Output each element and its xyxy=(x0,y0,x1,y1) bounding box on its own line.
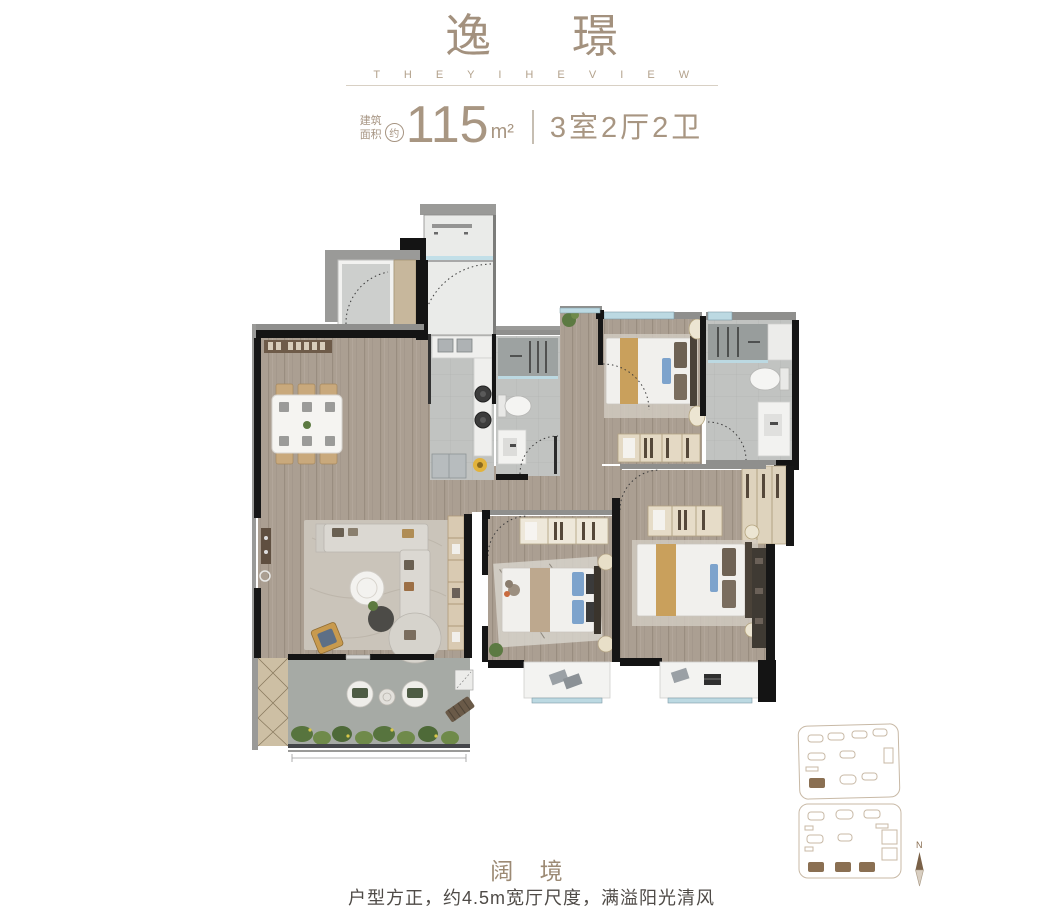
entry-label-marks xyxy=(432,224,472,228)
spec-row: 建筑 面积 约 115 m² 3室2厅2卫 xyxy=(0,102,1063,150)
compass-label: N xyxy=(916,840,923,850)
footer-desc-row: 户型方正，约4.5m宽厅尺度，满溢阳光清风 xyxy=(0,884,1063,910)
area-label-line2: 面积 xyxy=(360,129,382,143)
area-value: 115 xyxy=(406,102,489,150)
footer-headline: 阔 境 xyxy=(490,858,572,884)
master-headboard xyxy=(745,542,752,618)
toilet-master xyxy=(750,368,780,390)
page-subtitle: T H E Y I H E V I E W xyxy=(346,69,718,81)
page-title: 逸 璟 xyxy=(0,10,1063,63)
page: 逸 璟 T H E Y I H E V I E W 建筑 面积 约 115 m²… xyxy=(0,0,1063,922)
middle-plant xyxy=(489,643,503,657)
middle-nightstand xyxy=(598,554,614,570)
coffee-table xyxy=(350,571,384,605)
subtitle-band: T H E Y I H E V I E W xyxy=(346,69,718,86)
balcony-slider-door xyxy=(346,655,370,659)
master-nightstand xyxy=(745,525,759,539)
middle-headboard xyxy=(594,566,601,634)
table-centerpiece xyxy=(303,421,311,429)
balcony-hatch-panel xyxy=(258,658,288,746)
shower-main xyxy=(498,338,558,376)
bedroom-second-headboard xyxy=(690,336,697,406)
area-label: 建筑 面积 xyxy=(360,115,382,143)
footer-description: 户型方正，约4.5m宽厅尺度，满溢阳光清风 xyxy=(348,888,715,908)
footer-headline-row: 阔 境 xyxy=(0,852,1063,886)
kitchen-counter-right xyxy=(474,358,492,456)
header: 逸 璟 T H E Y I H E V I E W 建筑 面积 约 115 m²… xyxy=(0,0,1063,150)
foyer-cabinet xyxy=(394,260,416,332)
balcony-table xyxy=(379,689,395,705)
bedroom-second-window xyxy=(604,312,674,319)
coffee-table-plant xyxy=(368,601,378,611)
area-unit: m² xyxy=(491,121,514,144)
hallway-vertical-floor xyxy=(560,310,602,510)
console-table xyxy=(261,528,271,564)
layout-text: 3室2厅2卫 xyxy=(550,104,703,146)
area-label-line1: 建筑 xyxy=(360,115,382,129)
spec-divider xyxy=(532,110,534,144)
media-shelf xyxy=(448,516,464,650)
approx-badge: 约 xyxy=(385,123,404,142)
toilet-main xyxy=(505,396,531,416)
kitchen-sink xyxy=(438,339,453,352)
floor-plan xyxy=(252,198,812,763)
